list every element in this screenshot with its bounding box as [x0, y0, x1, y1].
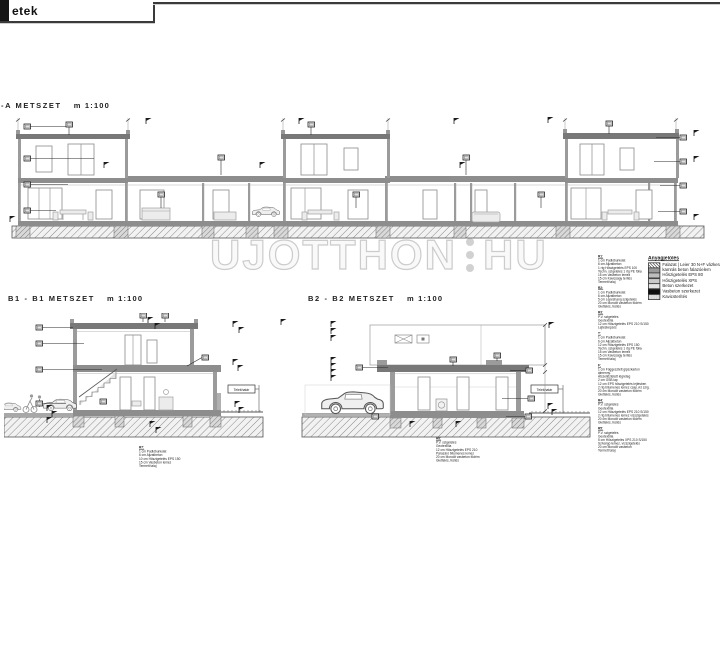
b2-street [305, 385, 390, 415]
legend-label: Vasbeton szerkezet [662, 290, 700, 294]
notes-group-heading: R1: [598, 255, 650, 259]
notes-group-heading: R8: [436, 437, 498, 441]
parked-car [322, 392, 384, 414]
notes-group: R2:1 cm Padlóburkolat6 cm Aljzatbeton5 c… [598, 287, 650, 309]
parked-car-partial [4, 403, 21, 412]
note-line: Glettelés, festés [436, 459, 498, 463]
legend-label: Kavicsterítés [662, 295, 687, 299]
section-b2-scale: m 1:100 [407, 294, 443, 303]
notes-group-heading: R4: [598, 399, 650, 403]
notes-b2-lines: R8:P.V. szigetelésGeotextília12 cm Hőszi… [436, 437, 498, 463]
section-b1-name: B1 - B1 METSZET [8, 294, 95, 303]
b2-upper-volume [370, 325, 545, 365]
note-line: Lejtésképzés [598, 326, 650, 330]
note-line: Glettelés, festés [598, 393, 650, 397]
section-aa-drawing [8, 116, 708, 242]
section-aa-title: -A METSZET m 1:100 [1, 101, 110, 110]
section-b2-name: B2 - B2 METSZET [308, 294, 395, 303]
note-line: Glettelés, festés [598, 305, 650, 309]
b1-property-label: Telekhatár [234, 388, 251, 392]
sheet-tab-label: etek [12, 4, 38, 18]
section-b1-title: B1 - B1 METSZET m 1:100 [8, 294, 143, 303]
b2-property-line: Telekhatár [531, 385, 563, 413]
parked-van [44, 399, 77, 411]
notes-group-heading: R3: [598, 311, 650, 315]
legend-label: Beton szerkezet [662, 284, 693, 288]
aa-ground-openings [28, 188, 652, 219]
notes-group: T:1 cm Padlóburkolat6 cm Aljzatbeton12 c… [598, 332, 650, 361]
tab-step-rule [153, 2, 155, 23]
watermark-dots-icon [466, 238, 474, 272]
notes-group: R4:P.V. szigetelésGeotextília12 cm Hőszi… [598, 399, 650, 425]
legend-label: kamrás beton falazóelem [662, 268, 710, 272]
b1-property-line: Telekhatár [228, 385, 259, 412]
car-in-garage [252, 207, 279, 217]
b2-building [377, 360, 529, 418]
notes-group: R1:1 cm Padlóburkolat6 cm Aljzatbeton1 r… [598, 255, 650, 284]
note-line: 1 cm Függesztett gipszkarton álmenny. [598, 368, 650, 375]
section-aa-name: -A METSZET [1, 101, 62, 110]
section-b2-title: B2 - B2 METSZET m 1:100 [308, 294, 443, 303]
section-b1-scale: m 1:100 [107, 294, 143, 303]
notes-group-heading: R5: [598, 427, 650, 431]
tab-bottom-rule [0, 21, 155, 24]
notes-group-heading: R2: [598, 287, 650, 291]
note-line: Termett talaj [598, 358, 650, 362]
aa-dimension-lines [16, 118, 678, 133]
legend-label: Hőszigetelés XPS [662, 279, 697, 283]
notes-group-heading: T: [598, 332, 650, 336]
drawing-sheet: { "header": { "tab_label": "etek" }, "wa… [0, 0, 720, 510]
note-line: Termett talaj [598, 281, 650, 285]
aa-upper-blocks [16, 129, 679, 183]
note-line: Glettelés, festés [598, 421, 650, 425]
layer-notes-column: R1:1 cm Padlóburkolat6 cm Aljzatbeton1 r… [598, 255, 650, 656]
section-b1-drawing: Telekhatár [4, 313, 304, 449]
notes-group: R3:P.V. szigetelésGeotextília12 cm Hőszi… [598, 311, 650, 329]
legend-label: Falazat | Leier 30 N+F vázkerámia [662, 263, 720, 267]
section-b2-drawing: Telekhatár [300, 313, 600, 449]
legend-swatch [648, 294, 660, 300]
b1-notes-block: R7:1 cm Padlóburkolat6 cm Aljzatbeton10 … [139, 446, 199, 490]
legend-rows: Falazat | Leier 30 N+F vázkerámiakamrás … [648, 262, 720, 299]
notes-b1-lines: R7:1 cm Padlóburkolat6 cm Aljzatbeton10 … [139, 446, 199, 468]
notes-group-heading: F: [598, 364, 650, 368]
note-line: Termett talaj [139, 464, 199, 468]
section-aa-scale: m 1:100 [74, 101, 110, 110]
sheet-top-rule [153, 2, 720, 5]
legend-row: Kavicsterítés [648, 294, 720, 299]
notes-column: R1:1 cm Padlóburkolat6 cm Aljzatbeton1 r… [598, 255, 650, 453]
b1-building [70, 319, 221, 416]
notes-group-heading: R7: [139, 446, 199, 450]
notes-group: R5:P.V. szigetelésGeotextília5 cm Hőszig… [598, 427, 650, 453]
material-legend: Anyagjelölés Falazat | Leier 30 N+F vázk… [648, 256, 720, 317]
b2-dimension-line [543, 323, 547, 413]
sheet-corner-block [0, 0, 9, 23]
notes-group: F:1 cm Függesztett gipszkarton álmenny.Á… [598, 364, 650, 397]
aa-ground [12, 226, 704, 238]
note-line: Termett talaj [598, 449, 650, 453]
legend-label: Hőszigetelés EPS 80 [662, 274, 703, 278]
b2-notes-block: R8:P.V. szigetelésGeotextília12 cm Hőszi… [436, 437, 498, 488]
legend-title: Anyagjelölés [648, 256, 720, 261]
